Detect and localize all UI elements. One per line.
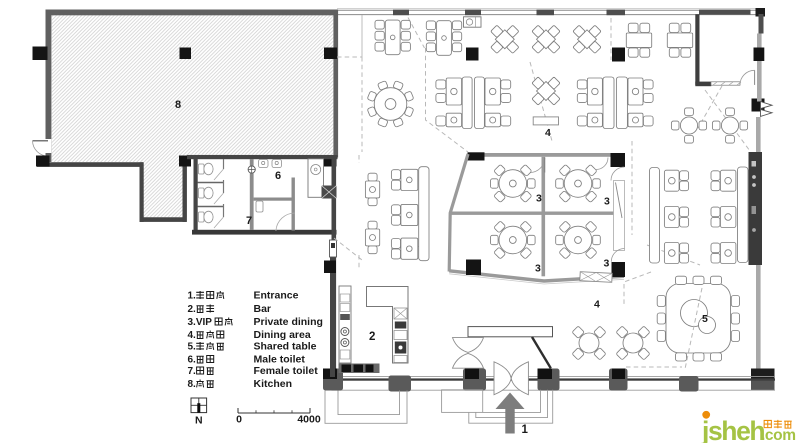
svg-text:Bar: Bar [254,303,272,315]
svg-text:4: 4 [545,127,551,139]
svg-text:2.: 2. [188,304,197,315]
svg-text:1: 1 [522,424,529,436]
svg-text:3: 3 [604,196,610,208]
svg-text:Kitchen: Kitchen [254,378,293,390]
svg-text:Private dining: Private dining [254,316,323,328]
svg-text:3: 3 [604,258,610,270]
svg-text:Dining area: Dining area [254,329,311,341]
svg-text:Shared table: Shared table [254,341,317,353]
svg-text:N: N [195,415,203,427]
svg-text:4000: 4000 [297,414,321,426]
svg-text:8: 8 [175,99,181,111]
svg-text:5: 5 [702,313,708,325]
svg-text:6: 6 [275,170,281,182]
svg-text:3.VIP: 3.VIP [188,317,213,328]
svg-text:Female toilet: Female toilet [254,365,319,377]
svg-text:jsheh: jsheh [701,416,764,443]
svg-text:4: 4 [594,299,600,311]
svg-text:6.: 6. [188,355,197,366]
svg-text:7: 7 [246,215,252,227]
svg-text:3: 3 [536,193,542,205]
svg-text:3: 3 [535,263,541,275]
svg-text:Male toilet: Male toilet [254,354,306,366]
svg-text:5.: 5. [188,342,197,353]
svg-text:4.: 4. [188,330,197,341]
svg-text:7.: 7. [188,366,197,377]
svg-text:8.: 8. [188,379,197,390]
svg-text:Entrance: Entrance [254,290,299,302]
svg-text:.com: .com [761,427,796,443]
svg-text:2: 2 [369,331,375,343]
svg-text:0: 0 [236,414,242,426]
svg-text:1.: 1. [188,291,197,302]
